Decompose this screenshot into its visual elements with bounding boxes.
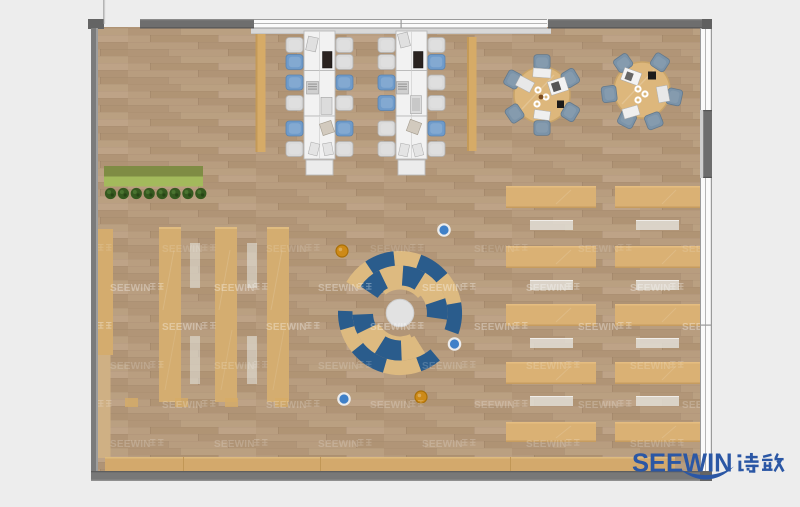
svg-text:SEEWIN: SEEWIN [632,450,733,478]
